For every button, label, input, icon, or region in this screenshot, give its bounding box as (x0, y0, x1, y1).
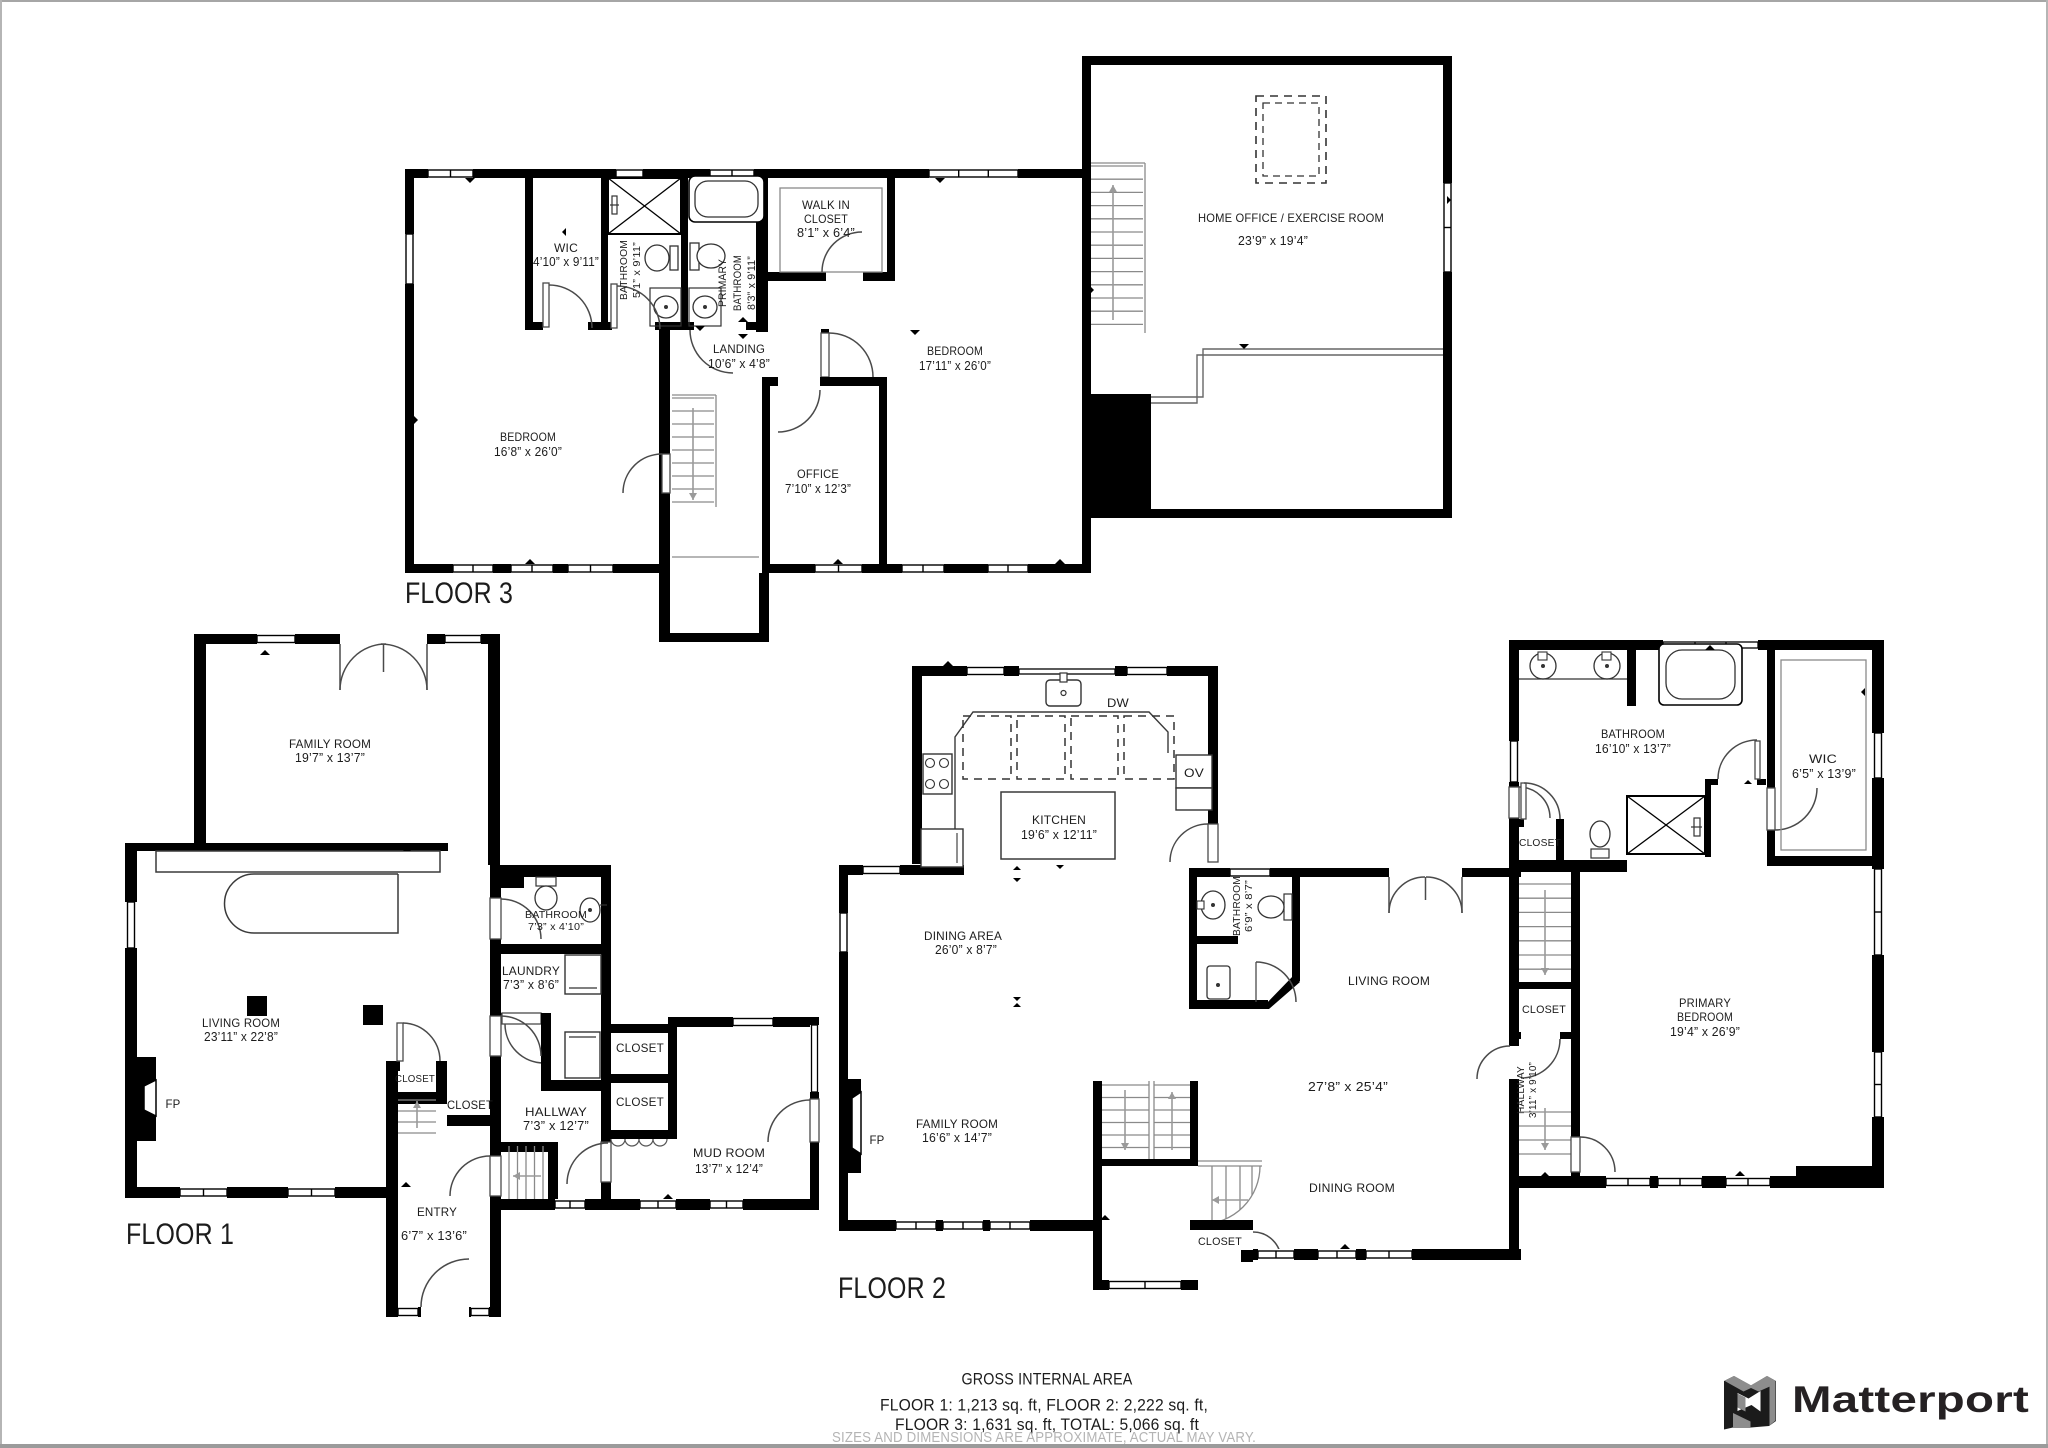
svg-text:13’7” x 12’4”: 13’7” x 12’4” (695, 1162, 763, 1176)
svg-text:Matterport: Matterport (1792, 1379, 2029, 1420)
svg-text:23’9” x 19’4”: 23’9” x 19’4” (1238, 234, 1308, 248)
svg-text:PRIMARY: PRIMARY (717, 259, 729, 307)
svg-text:WIC: WIC (554, 241, 578, 255)
svg-text:CLOSET: CLOSET (1519, 837, 1561, 849)
svg-text:HOME OFFICE / EXERCISE ROOM: HOME OFFICE / EXERCISE ROOM (1198, 211, 1384, 225)
svg-text:16’10” x 13’7”: 16’10” x 13’7” (1595, 742, 1671, 756)
svg-text:LANDING: LANDING (713, 342, 765, 356)
svg-text:OV: OV (1184, 766, 1204, 780)
svg-text:26’0” x 8’7”: 26’0” x 8’7” (935, 943, 997, 957)
svg-text:8’3” x 9’11”: 8’3” x 9’11” (746, 256, 758, 310)
svg-text:3’11” x 9’10”: 3’11” x 9’10” (1527, 1062, 1539, 1118)
svg-text:CLOSET: CLOSET (447, 1100, 493, 1112)
svg-text:MUD ROOM: MUD ROOM (693, 1146, 765, 1160)
svg-text:FLOOR 1: FLOOR 1 (126, 1218, 234, 1251)
svg-text:PRIMARY: PRIMARY (1679, 996, 1731, 1010)
svg-text:DINING AREA: DINING AREA (924, 929, 1002, 943)
svg-text:CLOSET: CLOSET (1522, 1004, 1566, 1016)
svg-text:SIZES AND DIMENSIONS ARE APPRO: SIZES AND DIMENSIONS ARE APPROXIMATE, AC… (832, 1429, 1256, 1446)
svg-text:FLOOR 2: FLOOR 2 (838, 1272, 946, 1305)
svg-text:19’4” x 26’9”: 19’4” x 26’9” (1670, 1025, 1740, 1039)
svg-text:6’9” x 8’7”: 6’9” x 8’7” (1243, 880, 1255, 932)
svg-text:8’1” x 6’4”: 8’1” x 6’4” (797, 226, 855, 240)
svg-text:7’3” x 8’6”: 7’3” x 8’6” (503, 978, 559, 992)
svg-text:10’6” x 4’8”: 10’6” x 4’8” (708, 357, 770, 371)
svg-text:19’6” x 12’11”: 19’6” x 12’11” (1021, 828, 1097, 842)
svg-text:BEDROOM: BEDROOM (500, 430, 556, 444)
svg-text:16’8” x 26’0”: 16’8” x 26’0” (494, 445, 562, 459)
svg-text:FP: FP (166, 1097, 181, 1111)
svg-text:WALK IN: WALK IN (802, 198, 850, 212)
svg-text:CLOSET: CLOSET (395, 1074, 435, 1085)
svg-text:4’10” x 9’11”: 4’10” x 9’11” (533, 255, 599, 269)
svg-text:BATHROOM: BATHROOM (732, 255, 744, 311)
svg-text:16’6” x 14’7”: 16’6” x 14’7” (922, 1131, 992, 1145)
svg-text:7’3” x 12’7”: 7’3” x 12’7” (523, 1119, 589, 1133)
svg-text:5’1” x 9’11”: 5’1” x 9’11” (631, 242, 643, 298)
svg-text:CLOSET: CLOSET (616, 1043, 664, 1055)
svg-text:FAMILY ROOM: FAMILY ROOM (289, 737, 371, 751)
svg-text:LAUNDRY: LAUNDRY (502, 964, 560, 978)
svg-text:7’3” x 4’10”: 7’3” x 4’10” (528, 921, 584, 933)
svg-text:BEDROOM: BEDROOM (1677, 1010, 1733, 1024)
svg-text:HALLWAY: HALLWAY (525, 1105, 587, 1119)
svg-text:GROSS INTERNAL AREA: GROSS INTERNAL AREA (962, 1370, 1133, 1389)
svg-text:6’5” x 13’9”: 6’5” x 13’9” (1792, 767, 1856, 781)
svg-text:KITCHEN: KITCHEN (1032, 813, 1086, 827)
svg-text:HALLWAY: HALLWAY (1515, 1066, 1527, 1114)
svg-text:17’11” x 26’0”: 17’11” x 26’0” (919, 359, 991, 373)
svg-text:CLOSET: CLOSET (1198, 1236, 1242, 1248)
svg-text:BATHROOM: BATHROOM (618, 240, 630, 300)
svg-text:27’8” x 25’4”: 27’8” x 25’4” (1308, 1080, 1388, 1094)
svg-text:6’7” x 13’6”: 6’7” x 13’6” (401, 1229, 467, 1243)
svg-text:BATHROOM: BATHROOM (1231, 876, 1243, 936)
svg-text:23’11” x 22’8”: 23’11” x 22’8” (204, 1030, 278, 1044)
svg-text:WIC: WIC (1809, 752, 1837, 766)
svg-text:DW: DW (1107, 696, 1129, 710)
svg-text:BATHROOM: BATHROOM (1601, 727, 1665, 741)
svg-text:FAMILY ROOM: FAMILY ROOM (916, 1117, 998, 1131)
svg-text:FLOOR 1: 1,213 sq. ft, FLOOR 2: FLOOR 1: 1,213 sq. ft, FLOOR 2: 2,222 sq… (880, 1396, 1208, 1415)
svg-text:FP: FP (870, 1133, 885, 1147)
svg-text:OFFICE: OFFICE (797, 467, 839, 481)
svg-text:DINING ROOM: DINING ROOM (1309, 1181, 1395, 1195)
svg-text:BEDROOM: BEDROOM (927, 344, 983, 358)
svg-text:BATHROOM: BATHROOM (525, 909, 587, 921)
svg-text:CLOSET: CLOSET (804, 212, 848, 226)
svg-text:FLOOR 3: FLOOR 3 (405, 577, 513, 610)
svg-text:LIVING ROOM: LIVING ROOM (202, 1016, 280, 1030)
svg-text:CLOSET: CLOSET (616, 1097, 664, 1109)
svg-text:7’10” x 12’3”: 7’10” x 12’3” (785, 482, 851, 496)
svg-text:LIVING ROOM: LIVING ROOM (1348, 974, 1430, 988)
svg-text:ENTRY: ENTRY (417, 1205, 457, 1219)
svg-text:19’7” x 13’7”: 19’7” x 13’7” (295, 751, 365, 765)
